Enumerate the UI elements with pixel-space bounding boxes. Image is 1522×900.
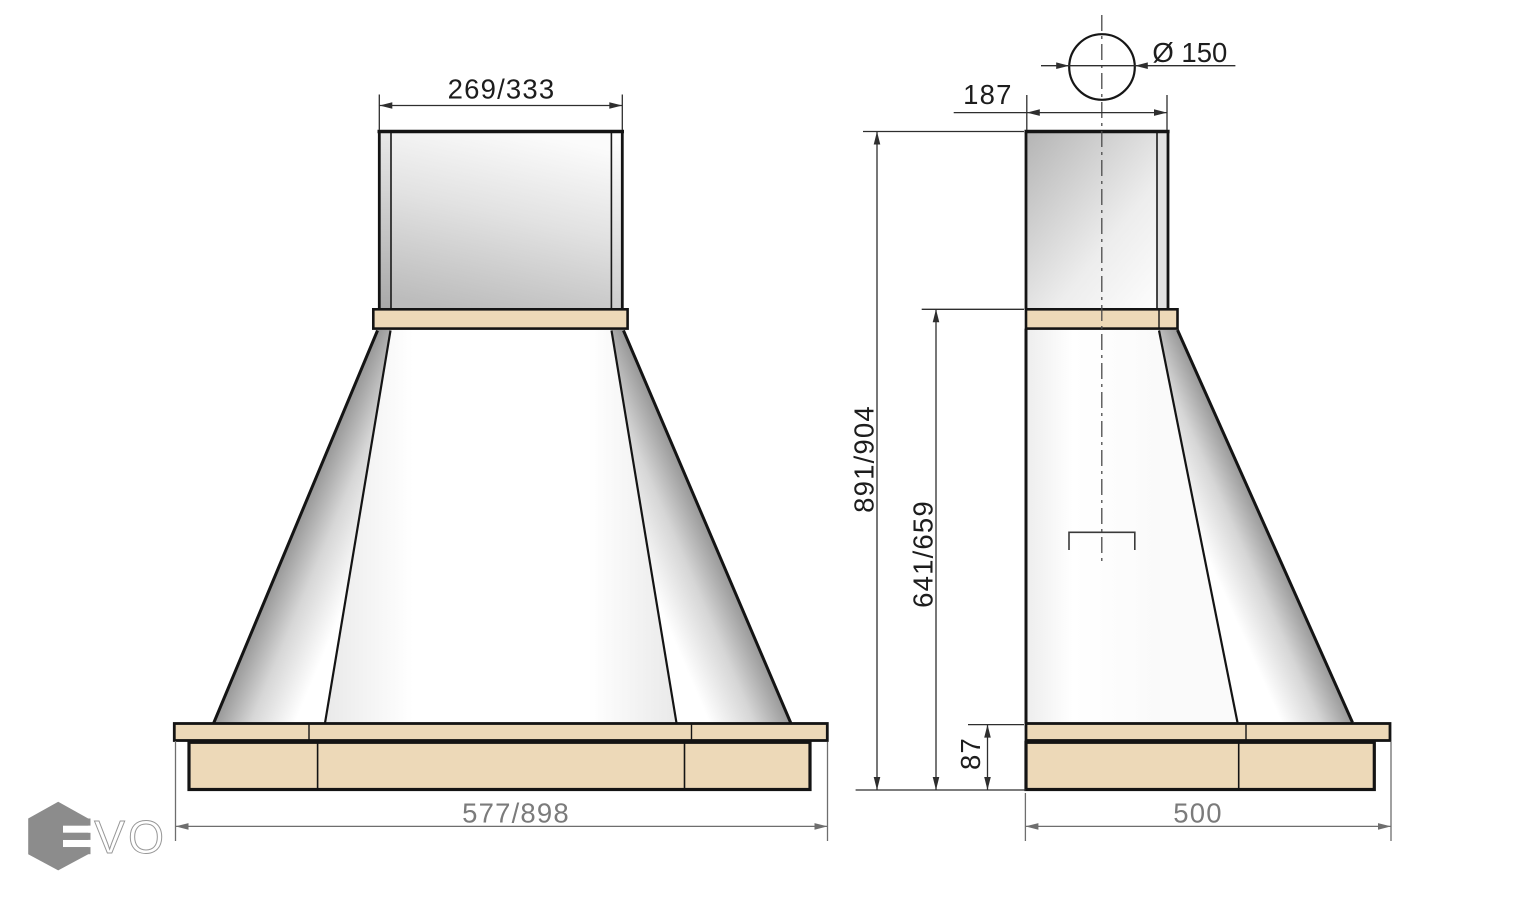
- svg-text:641/659: 641/659: [908, 500, 939, 608]
- svg-text:Ø 150: Ø 150: [1152, 37, 1227, 68]
- svg-text:500: 500: [1173, 798, 1222, 829]
- svg-text:269/333: 269/333: [448, 74, 556, 105]
- svg-text:891/904: 891/904: [849, 405, 880, 513]
- svg-text:187: 187: [963, 79, 1012, 110]
- svg-text:87: 87: [955, 737, 986, 770]
- svg-text:577/898: 577/898: [462, 798, 570, 829]
- svg-text:VO: VO: [94, 811, 167, 863]
